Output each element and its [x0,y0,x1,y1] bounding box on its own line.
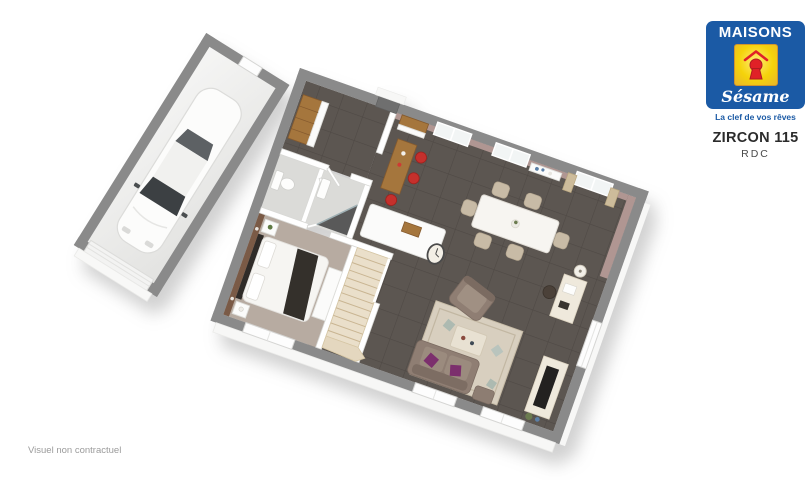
brand-script-name: Sésame [721,89,789,105]
plan-floor-level: RDC [688,148,811,160]
disclaimer-text: Visuel non contractuel [28,445,121,456]
brand-emblem [734,44,778,86]
brand-tagline: La clef de vos rêves [688,112,811,122]
plan-model-title: ZIRCON 115 [688,130,811,146]
brand-logo: MAISONS Sésame [706,21,805,109]
brand-name: MAISONS [719,25,793,40]
floorplan-3d-render [0,0,811,480]
keyhole-icon [741,48,771,82]
house-plan [60,8,657,455]
purple-pillow-2 [450,365,462,377]
page: MAISONS Sésame La clef de vos rêves ZIRC… [0,0,811,480]
